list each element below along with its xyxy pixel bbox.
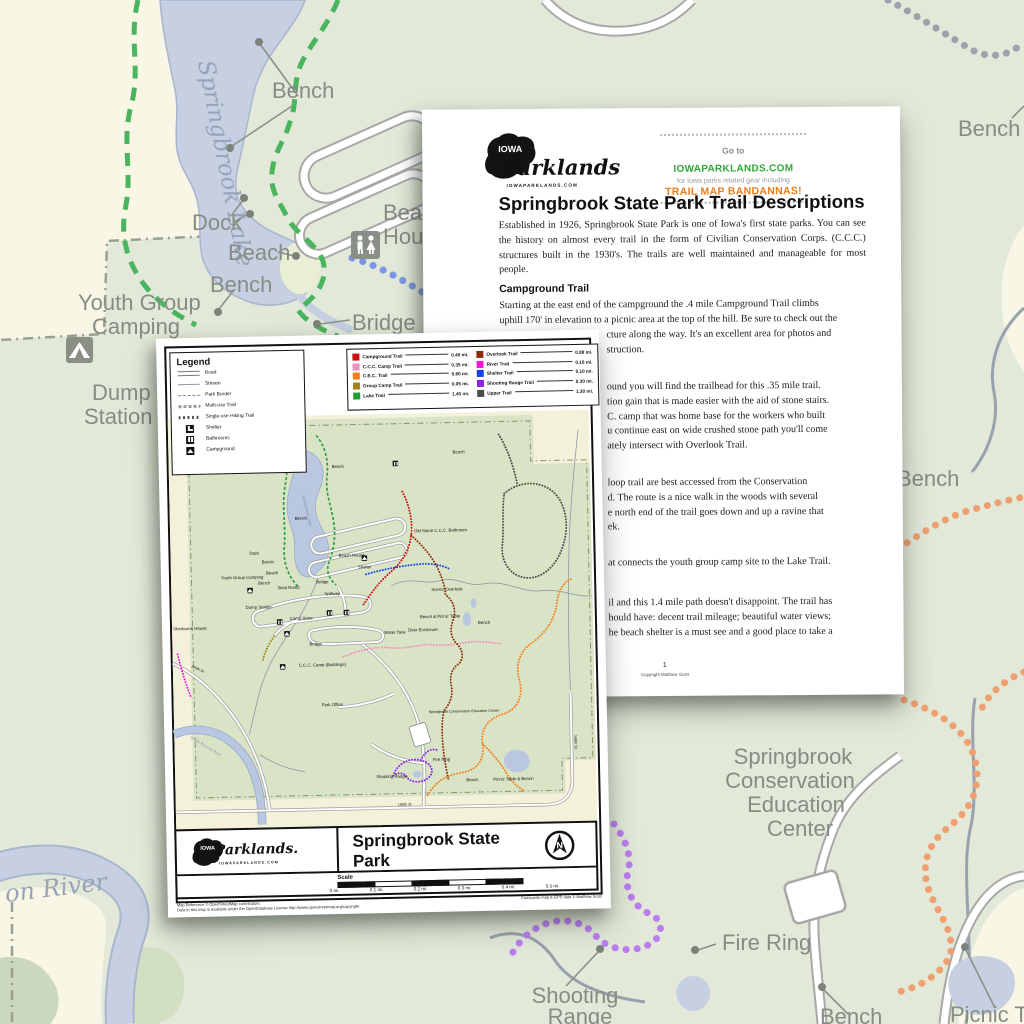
bench-label-3: Bench <box>958 116 1020 141</box>
dump-label-1: Dump <box>92 380 151 405</box>
mini-label: Bridge <box>309 641 322 646</box>
doc-campground-paragraph: Starting at the east end of the campgrou… <box>499 297 866 329</box>
legend-box: Legend Road Stream Park Border Multi-use… <box>169 350 307 476</box>
doc-frag-line: il and this 1.4 mile path doesn't disapp… <box>608 595 870 612</box>
youth-group-label-1: Youth Group <box>78 290 201 315</box>
cec-label-1: Springbrook <box>734 744 854 769</box>
mini-label: Scenic Overlook <box>431 586 463 592</box>
map-logo-domain: IOWAPARKLANDS.COM <box>219 860 279 865</box>
trail-mileage-box: Campground Trail0.40 mi. C.C.C. Camp Tra… <box>346 343 599 410</box>
bathrooms-icon <box>186 435 194 443</box>
map-logo-iowa: IOWA <box>200 846 215 852</box>
doc-trail2-fragments: ound you will find the trailhead for thi… <box>607 379 870 455</box>
fire-ring-label: Fire Ring <box>722 930 811 955</box>
doc-heading-campground-trail: Campground Trail <box>499 283 589 296</box>
map-title-cell: Springbrook State Park Guthrie County, I… <box>338 824 526 871</box>
doc-p2-fragments: cture along the way. It's an excellent a… <box>606 327 868 358</box>
trail-swatch <box>353 363 360 370</box>
mini-label: Shelter <box>358 564 372 569</box>
logo-iowa-text: IOWA <box>498 144 523 154</box>
mini-label: Bench <box>262 559 275 564</box>
north-arrow-cell: N <box>525 823 596 867</box>
mini-label: Beach <box>266 570 279 575</box>
cec-label-3: Education <box>747 792 845 817</box>
shooting-label-2: Range <box>548 1004 613 1024</box>
mini-label: Picnic Table & Bench <box>493 776 534 782</box>
legend-item-campground: Campground <box>178 443 299 457</box>
beach-label: Beach <box>228 240 290 265</box>
trail-swatch <box>477 380 484 387</box>
mini-label: Bench <box>466 777 479 782</box>
mini-label: Boat Ramp <box>278 585 300 590</box>
doc-trail4-fragments: at connects the youth group camp site to… <box>608 555 870 572</box>
mini-label: Bench & Picnic Table <box>420 613 461 619</box>
stream-sample <box>178 383 200 385</box>
trail-swatch <box>353 392 360 399</box>
promo-line1: Go to IOWAPARKLANDS.COM <box>662 140 804 177</box>
logo-domain-text: IOWAPARKLANDS.COM <box>506 183 577 188</box>
mini-label: Bench <box>295 516 308 521</box>
trail-swatch <box>476 351 483 358</box>
logo-script-text: Parklands <box>502 154 620 180</box>
mini-label: Dump Station <box>246 604 273 610</box>
bathrooms-icon <box>351 231 380 259</box>
map-logo-script: Parklands. <box>215 841 299 859</box>
cec-label-4: Center <box>767 816 833 841</box>
north-letter: N <box>556 840 563 850</box>
bridge-label: Bridge <box>352 310 416 335</box>
mini-label: Bench <box>452 449 465 454</box>
mini-label: Sherburne House <box>173 626 207 632</box>
scale-label: Scale <box>337 875 353 881</box>
shelter-icon <box>186 424 194 432</box>
mini-label: Youth Group Camping <box>221 574 264 580</box>
bench-label-4: Bench <box>897 466 959 491</box>
mini-label: Bridge <box>316 579 329 584</box>
mini-label: Beach House <box>339 552 366 558</box>
screenshot-stage: Springbrook Lake Bench Dock Beach Bench … <box>0 0 1024 1024</box>
mini-label: Deer Enclosure <box>408 627 438 633</box>
mini-label: Camp Store <box>290 615 314 620</box>
trail-swatch <box>353 383 360 390</box>
trail-col-right: Overlook Trail0.89 mi. River Trail0.10 m… <box>476 348 593 404</box>
doc-frag-line: ek. <box>608 519 870 536</box>
promo-site-link[interactable]: IOWAPARKLANDS.COM <box>673 163 793 175</box>
mini-label: Bench <box>258 580 271 585</box>
dock-label: Dock <box>192 210 243 235</box>
cec-label-2: Conservation <box>725 768 855 793</box>
trail-swatch <box>477 361 484 368</box>
park-border-sample <box>178 395 200 396</box>
trail-row: Lake Trail1.40 mi. <box>353 389 469 401</box>
north-arrow-icon: N <box>543 829 576 862</box>
trail-row: Upper Trail1.30 mi. <box>477 386 593 398</box>
trail-swatch <box>353 373 360 380</box>
campground-icon <box>66 337 93 363</box>
bench-label-1: Bench <box>272 78 334 103</box>
mini-label: Spillway <box>324 591 341 596</box>
road-sample <box>178 371 200 376</box>
doc-title: Springbrook State Park Trail Description… <box>499 190 879 215</box>
youth-group-label-2: Camping <box>92 314 180 339</box>
map-title: Springbrook State Park <box>352 828 526 872</box>
mini-label: Dock <box>249 551 260 556</box>
doc-frag-line: he beach shelter is a must see and a goo… <box>609 624 871 641</box>
mini-label: C.C.C. Camp (Buildings) <box>299 662 347 668</box>
mini-label: Bench <box>478 620 491 625</box>
mini-label: Bench <box>332 464 345 469</box>
trail-col-left: Campground Trail0.40 mi. C.C.C. Camp Tra… <box>352 350 469 406</box>
mini-label: Water Tank <box>384 630 406 635</box>
doc-intro-paragraph: Established in 1926, Springbrook State P… <box>499 217 866 279</box>
mini-label: Fire Ring <box>433 757 451 762</box>
doc-frag-line: struction. <box>607 341 869 358</box>
doc-frag-line: at connects the youth group camp site to… <box>608 555 870 572</box>
iowa-parklands-logo: IOWA Parklands IOWAPARKLANDS.COM <box>482 132 632 199</box>
trail-map-page: Bench Bench Bench Bench Bench Bench Benc… <box>156 329 611 917</box>
singleuse-sample <box>179 416 201 419</box>
doc-frag-line: cture along the way. It's an excellent a… <box>606 327 868 344</box>
bench-label-2: Bench <box>210 272 272 297</box>
multiuse-sample <box>178 405 200 408</box>
mini-label: Park Office <box>322 702 344 707</box>
trail-swatch <box>477 370 484 377</box>
dump-label-2: Station <box>84 404 153 429</box>
map-logo-cell: IOWA Parklands. IOWAPARKLANDS.COM <box>176 828 339 874</box>
doc-frag-line: ately intersect with Overlook Trail. <box>607 438 869 455</box>
doc-trail5-fragments: il and this 1.4 mile path doesn't disapp… <box>608 595 870 641</box>
bench-label-5: Bench <box>820 1004 882 1024</box>
promo-gear-text: for Iowa parks related gear including <box>662 177 804 185</box>
mini-road-label: 160th St <box>398 802 412 806</box>
doc-trail3-fragments: loop trail are best accessed from the Co… <box>608 475 870 536</box>
trail-swatch <box>477 390 484 397</box>
mini-road-label: 146th St <box>573 735 577 749</box>
mini-label: Shooting Range <box>376 774 408 780</box>
picnic-label: Picnic Ta <box>950 1002 1024 1024</box>
campground-icon <box>186 446 194 454</box>
promo-goto: Go to <box>722 145 744 155</box>
trail-swatch <box>352 354 359 361</box>
